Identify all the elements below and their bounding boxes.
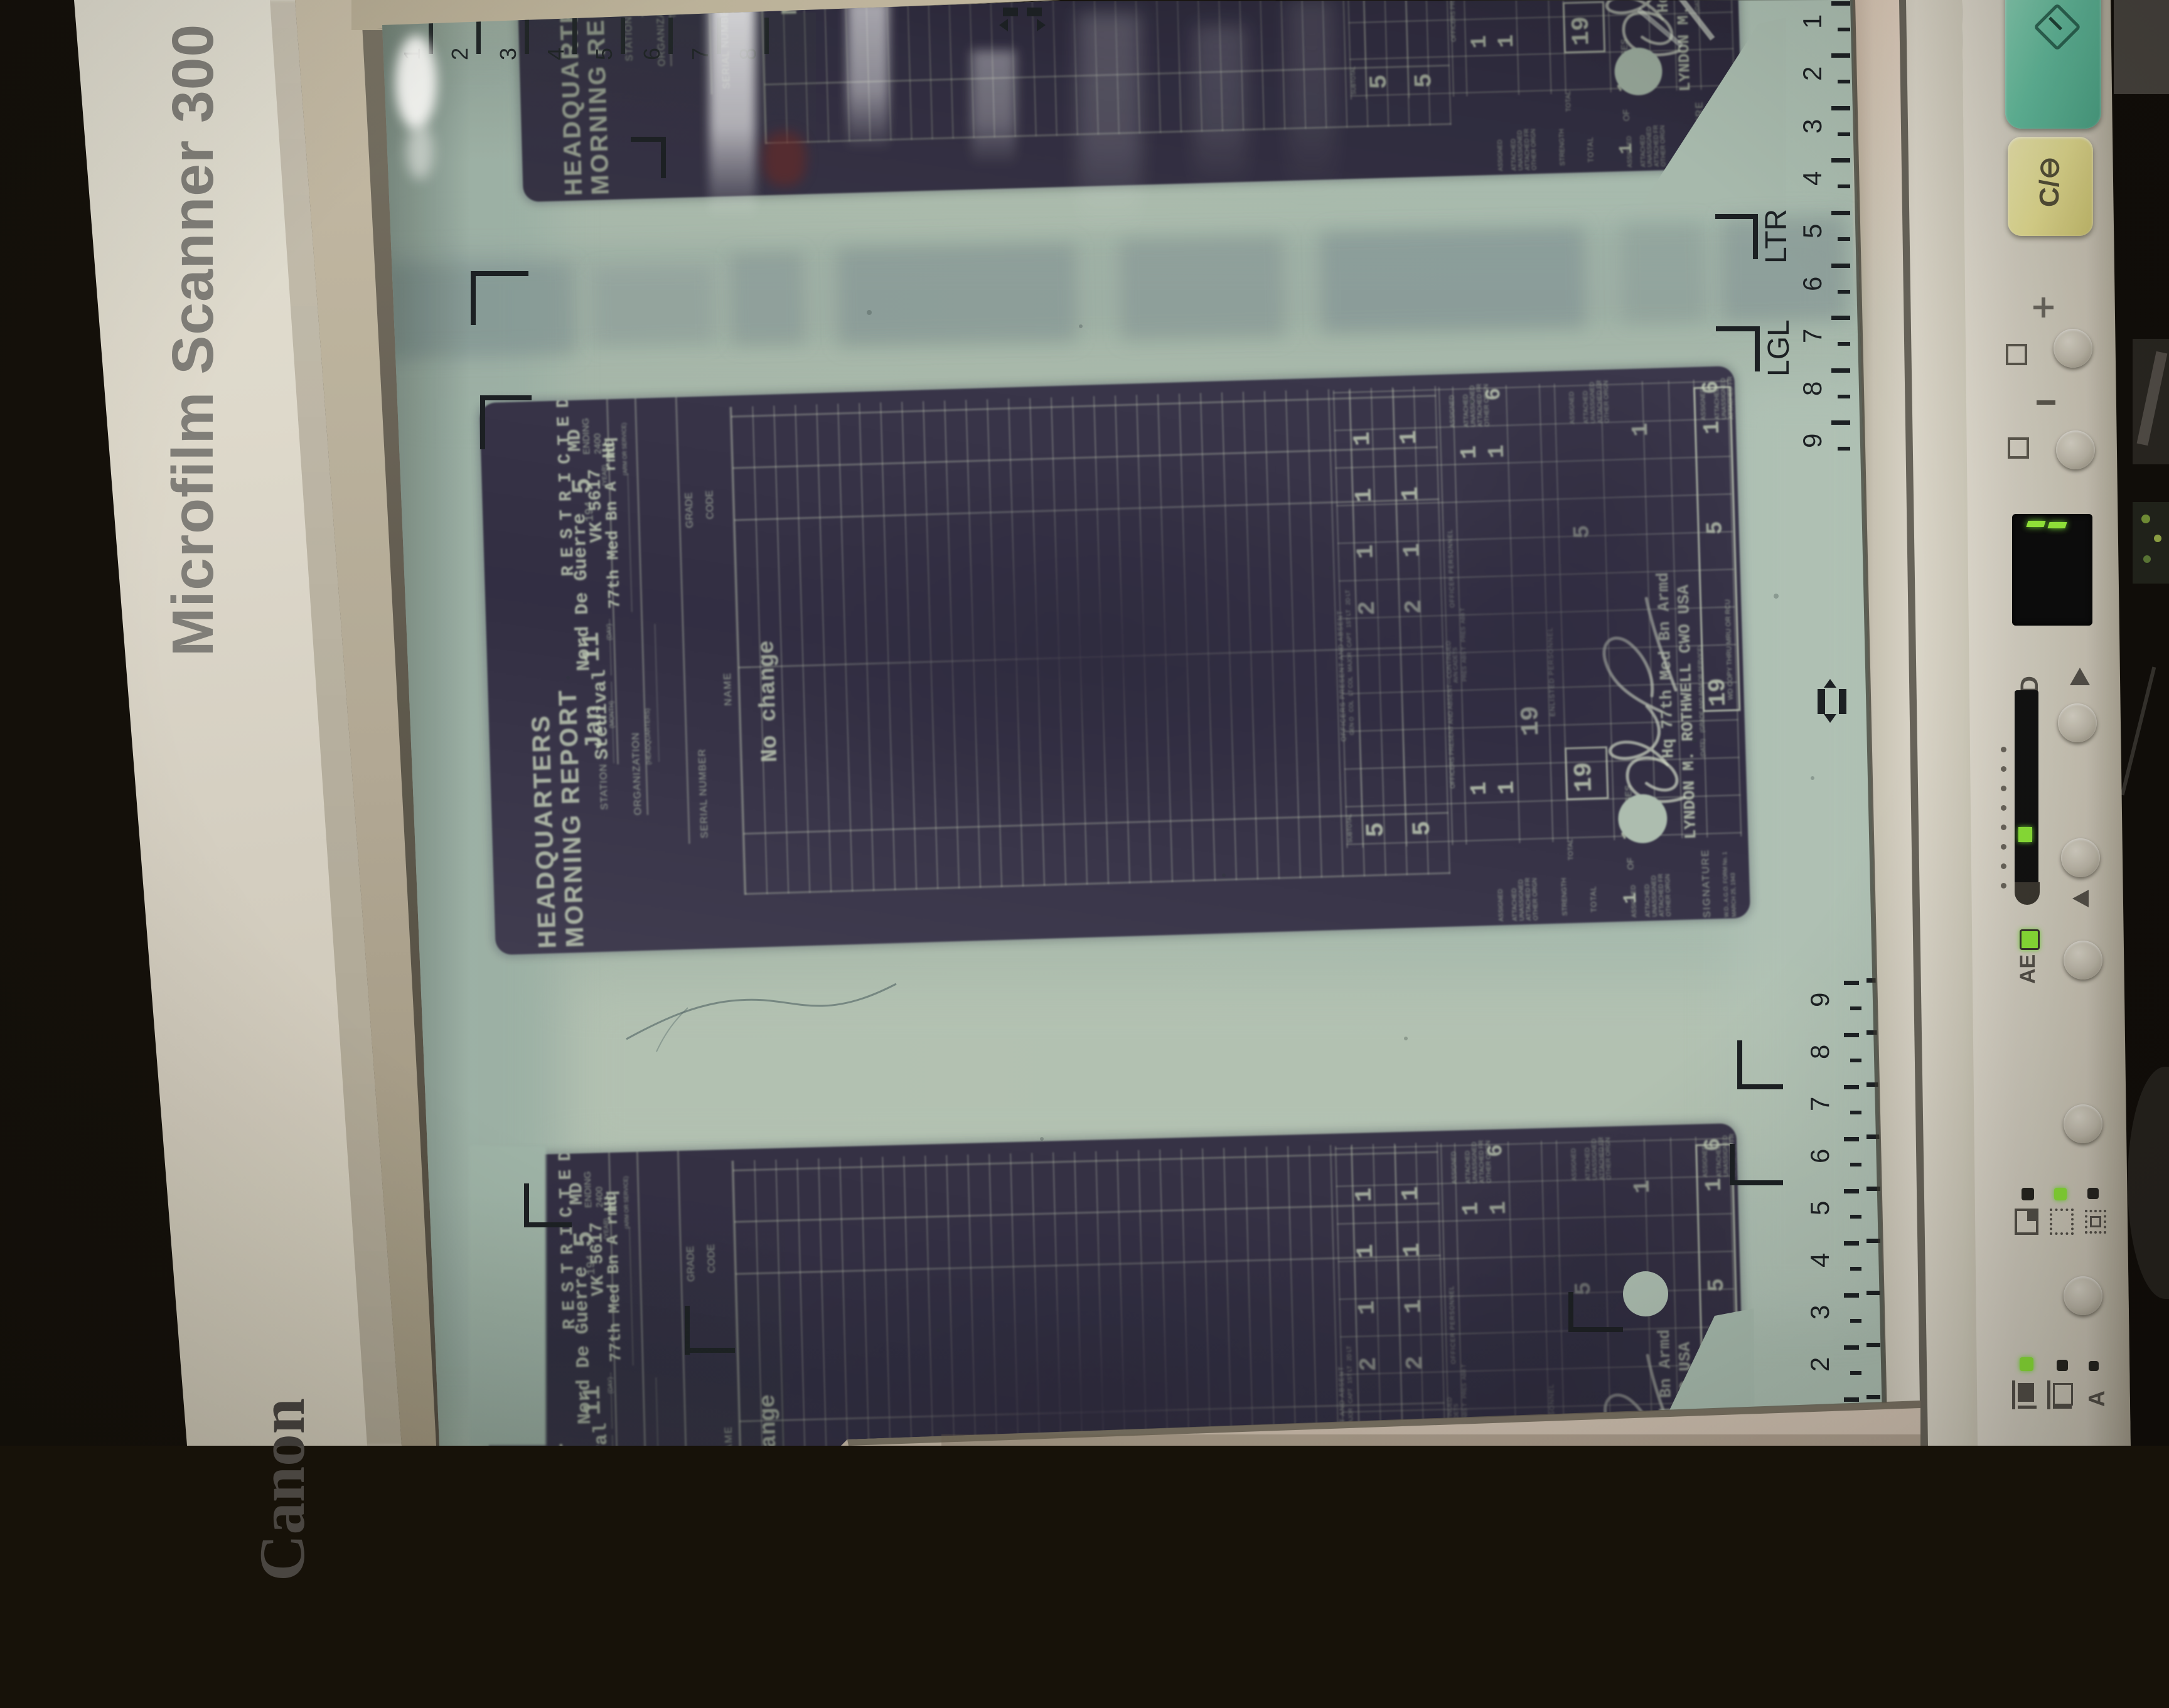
svg-text:8: 8: [1805, 1045, 1834, 1059]
svg-text:3: 3: [1797, 119, 1827, 134]
svg-text:7: 7: [1797, 329, 1827, 343]
svg-text:7: 7: [1805, 1097, 1834, 1111]
svg-text:9: 9: [1797, 434, 1827, 448]
svg-text:4: 4: [1805, 1253, 1834, 1268]
svg-text:4: 4: [1797, 171, 1827, 186]
svg-text:5: 5: [1797, 224, 1827, 238]
svg-text:2: 2: [1797, 67, 1827, 81]
svg-text:6: 6: [1797, 277, 1827, 291]
svg-text:LGL: LGL: [1762, 319, 1796, 376]
svg-text:5: 5: [1805, 1201, 1834, 1215]
svg-text:3: 3: [1805, 1305, 1834, 1320]
svg-text:LTR: LTR: [1760, 209, 1793, 264]
svg-text:9: 9: [1805, 993, 1834, 1007]
svg-text:1: 1: [1797, 14, 1827, 29]
svg-text:8: 8: [1797, 382, 1827, 396]
svg-text:6: 6: [1805, 1149, 1834, 1163]
svg-text:2: 2: [1805, 1357, 1834, 1372]
